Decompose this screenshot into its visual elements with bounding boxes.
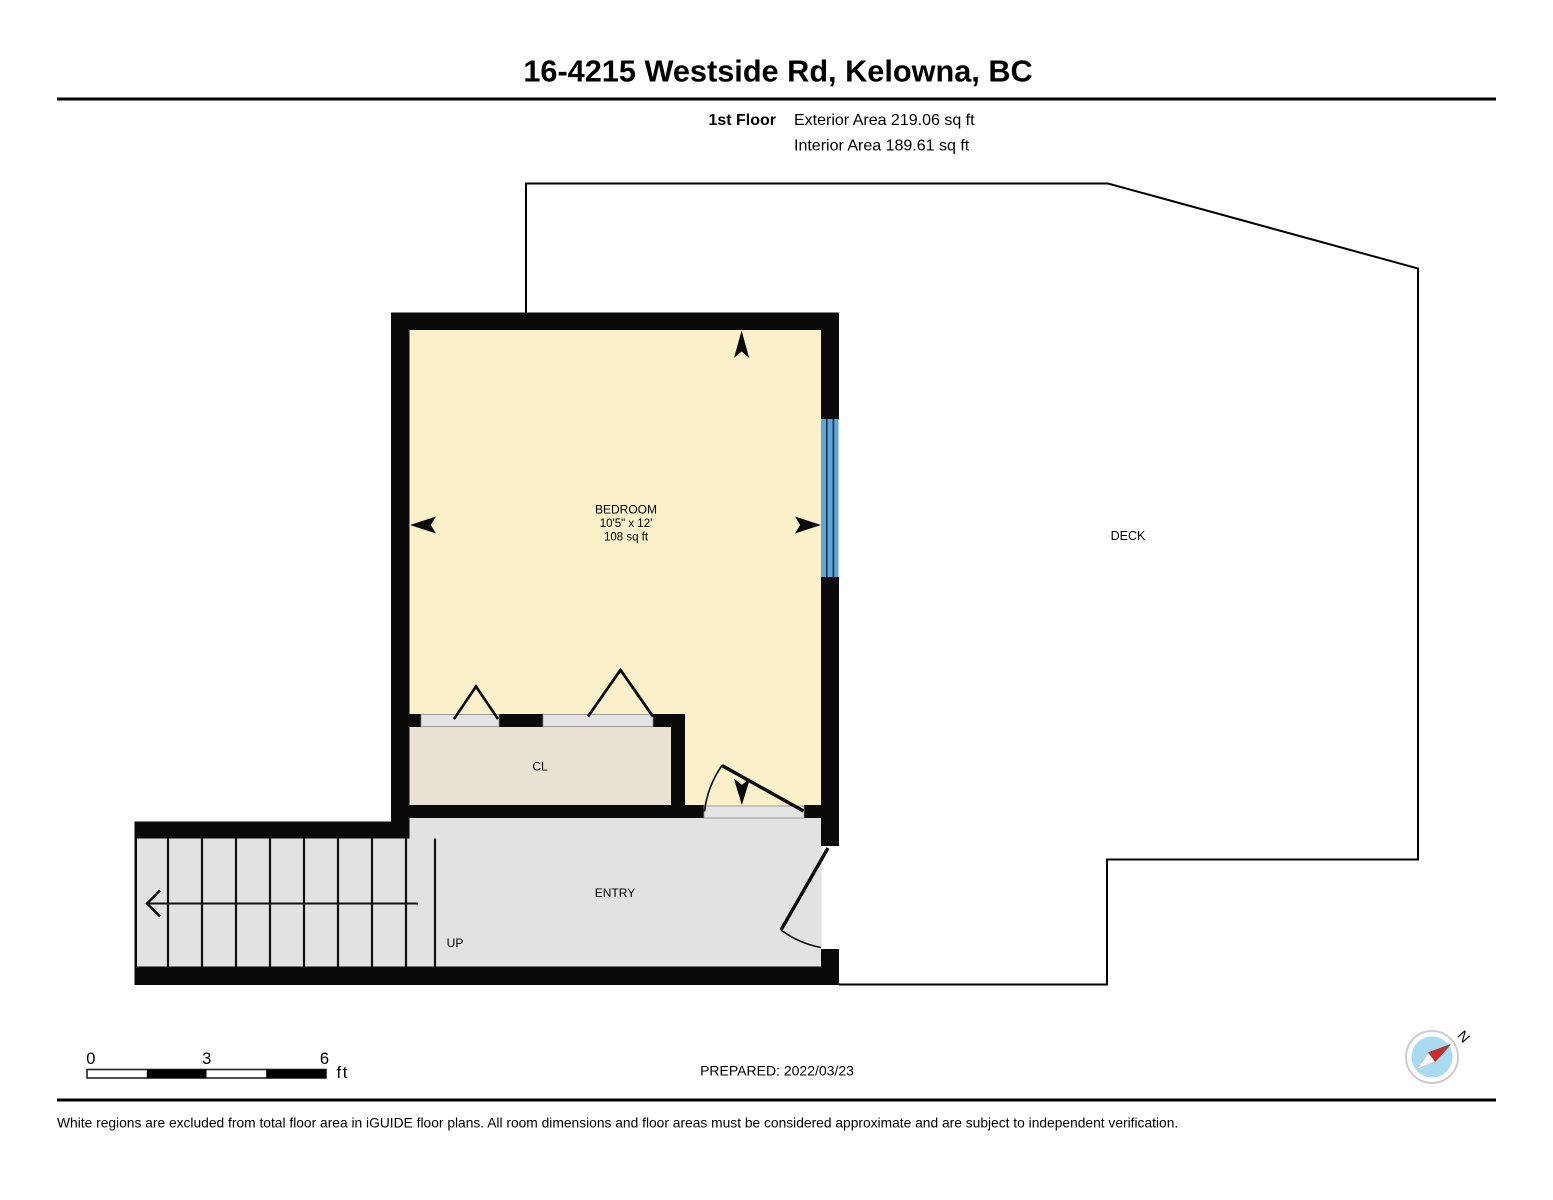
svg-text:CL: CL bbox=[532, 760, 548, 774]
svg-text:3: 3 bbox=[202, 1050, 211, 1068]
svg-text:White regions are excluded fro: White regions are excluded from total fl… bbox=[57, 1116, 1178, 1131]
svg-text:16-4215 Westside Rd, Kelowna,: 16-4215 Westside Rd, Kelowna, BC bbox=[523, 54, 1032, 89]
svg-text:BEDROOM: BEDROOM bbox=[595, 503, 657, 517]
svg-text:ft: ft bbox=[337, 1063, 349, 1082]
svg-text:6: 6 bbox=[320, 1050, 329, 1068]
svg-text:0: 0 bbox=[86, 1050, 95, 1068]
svg-text:1st Floor: 1st Floor bbox=[708, 112, 776, 129]
svg-text:108 sq ft: 108 sq ft bbox=[604, 532, 649, 544]
svg-text:UP: UP bbox=[447, 936, 464, 950]
svg-text:Exterior Area 219.06 sq ft: Exterior Area 219.06 sq ft bbox=[794, 112, 975, 129]
svg-text:ENTRY: ENTRY bbox=[595, 886, 635, 900]
svg-text:N: N bbox=[1454, 1028, 1473, 1046]
svg-text:DECK: DECK bbox=[1111, 529, 1146, 543]
svg-text:PREPARED: 2022/03/23: PREPARED: 2022/03/23 bbox=[700, 1063, 854, 1079]
svg-text:10'5" x 12': 10'5" x 12' bbox=[600, 518, 653, 530]
svg-text:Interior Area 189.61 sq ft: Interior Area 189.61 sq ft bbox=[794, 138, 970, 155]
